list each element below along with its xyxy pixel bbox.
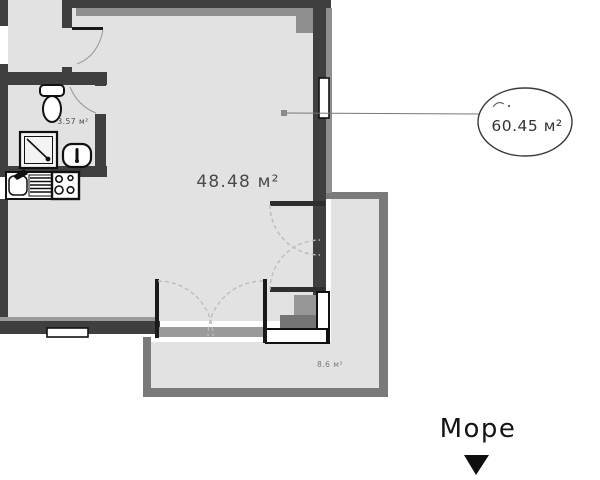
wall-top [70,0,331,8]
sea-label: Море [430,414,526,444]
terrace-border-left [143,337,151,397]
terrace-border-top [325,192,388,199]
living-room-area-label: 48.48 м² [188,172,288,192]
sea-direction-triangle-down-icon [464,455,489,475]
floor-plan: 3.57 м² 48.48 м² 8.6 м² 60.45 м² Море [0,0,600,480]
wall-right [313,8,326,295]
leader-anchor-dot [281,110,287,116]
entry-door-leaf [72,27,103,30]
wall-corner-step [296,8,313,33]
terrace-border-right [379,192,388,397]
niche-stub-top [270,201,325,206]
wall-bathroom-right-upper [95,72,106,86]
wall-left-top [0,0,8,26]
drainer-icon [29,175,52,196]
floor-plan-drawing [0,0,600,480]
wall-bathroom-top [0,72,107,85]
wall-left-bottom [0,199,8,334]
window-corner-horizontal-icon [266,329,327,343]
wall-hall-divider-upper [62,0,72,28]
kitchen-counter [6,169,79,199]
terrace-area-label: 8.6 м² [308,360,352,369]
window-bottom-icon [47,328,88,337]
shower-icon [20,132,57,168]
terrace-border-bottom [143,388,388,397]
wall-bottom-inner-face [0,317,158,321]
double-door-bottom-left-leaf [155,279,159,338]
washbasin-icon [63,144,91,167]
total-area-callout-label: 60.45 м² [480,117,574,135]
double-door-bottom-right-leaf [263,279,267,343]
window-right-icon [319,78,329,118]
bathroom-area-label: 3.57 м² [50,117,96,126]
balloon-sketch-dot [508,105,510,107]
stove-icon [52,172,79,199]
wall-top-inner-face [76,8,298,16]
